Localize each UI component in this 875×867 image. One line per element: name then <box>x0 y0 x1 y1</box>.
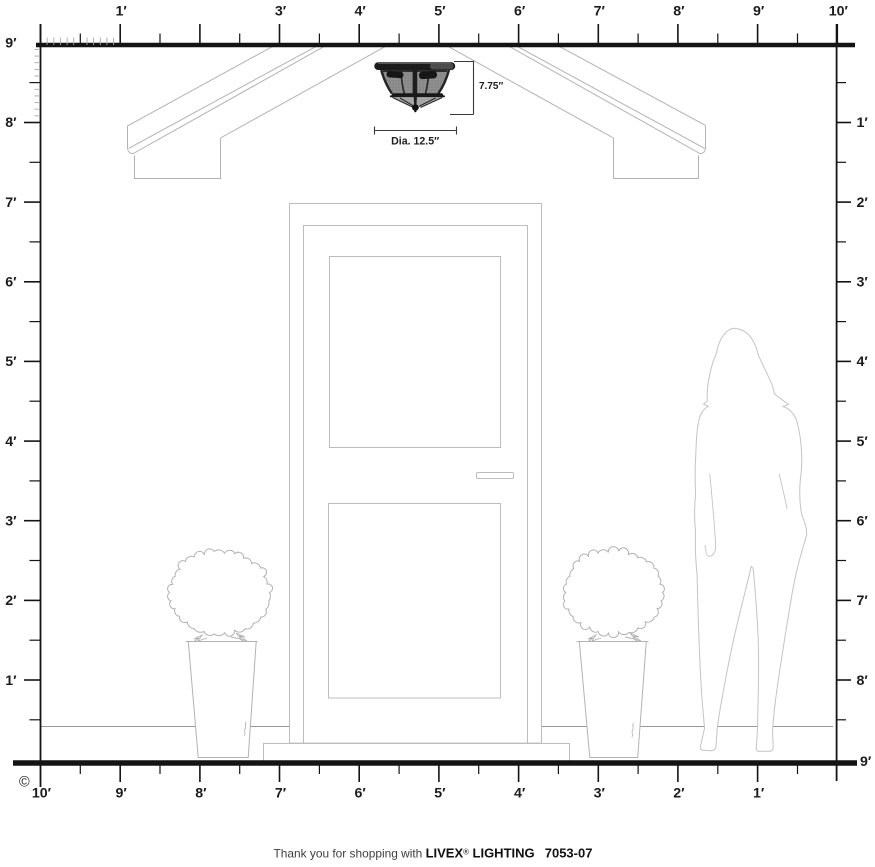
svg-text:9′: 9′ <box>5 36 17 52</box>
svg-text:1′: 1′ <box>5 673 17 689</box>
svg-text:3′: 3′ <box>857 275 869 291</box>
svg-text:4′: 4′ <box>355 4 367 20</box>
svg-text:3′: 3′ <box>594 786 606 802</box>
svg-text:5′: 5′ <box>434 786 446 802</box>
svg-text:4′: 4′ <box>514 786 526 802</box>
svg-text:7′: 7′ <box>857 593 869 609</box>
svg-text:3′: 3′ <box>275 4 287 20</box>
svg-text:10′: 10′ <box>32 786 52 802</box>
svg-text:1′: 1′ <box>116 4 128 20</box>
svg-text:6′: 6′ <box>355 786 367 802</box>
svg-text:6′: 6′ <box>5 275 17 291</box>
svg-text:8′: 8′ <box>5 115 17 131</box>
svg-text:7′: 7′ <box>5 195 17 211</box>
svg-text:1′: 1′ <box>857 115 869 131</box>
svg-text:4′: 4′ <box>5 434 17 450</box>
svg-text:1′: 1′ <box>753 786 765 802</box>
svg-text:Thank you for shopping with LI: Thank you for shopping with LIVEX® LIGHT… <box>274 846 593 861</box>
svg-text:2′: 2′ <box>5 593 17 609</box>
svg-text:5′: 5′ <box>5 354 17 370</box>
svg-text:8′: 8′ <box>195 786 207 802</box>
svg-text:7.75″: 7.75″ <box>479 81 503 92</box>
svg-text:7′: 7′ <box>594 4 606 20</box>
svg-text:Dia. 12.5″: Dia. 12.5″ <box>391 135 439 147</box>
svg-text:4′: 4′ <box>857 354 869 370</box>
svg-text:2′: 2′ <box>857 195 869 211</box>
svg-text:5′: 5′ <box>434 4 446 20</box>
svg-text:7′: 7′ <box>275 786 287 802</box>
svg-text:10′: 10′ <box>829 4 849 20</box>
svg-text:9′: 9′ <box>753 4 765 20</box>
svg-text:6′: 6′ <box>857 514 869 530</box>
svg-text:9′: 9′ <box>860 754 872 770</box>
svg-text:8′: 8′ <box>673 4 685 20</box>
svg-text:5′: 5′ <box>857 434 869 450</box>
svg-text:6′: 6′ <box>514 4 526 20</box>
svg-text:8′: 8′ <box>857 673 869 689</box>
svg-text:2′: 2′ <box>673 786 685 802</box>
svg-text:9′: 9′ <box>116 786 128 802</box>
svg-text:©: © <box>19 774 30 790</box>
svg-text:3′: 3′ <box>5 514 17 530</box>
